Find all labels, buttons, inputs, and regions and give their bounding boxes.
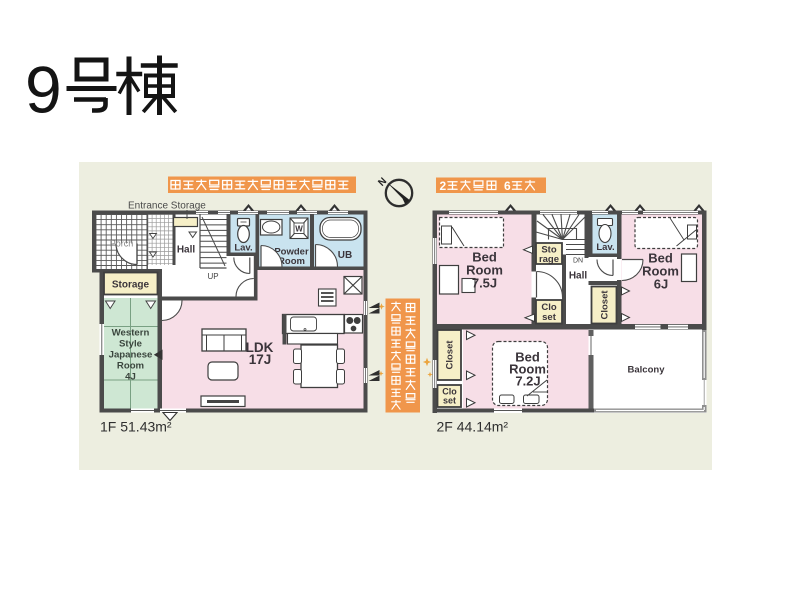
svg-text:Japanese: Japanese [109,350,153,361]
svg-text:7.2J: 7.2J [515,374,540,389]
svg-text:4J: 4J [125,372,136,383]
svg-text:Room: Room [117,361,144,372]
svg-text:Style: Style [119,339,142,350]
svg-text:UP: UP [207,272,218,281]
svg-text:Balcony: Balcony [628,365,666,376]
svg-text:Closet: Closet [445,340,456,370]
svg-text:DN: DN [573,258,583,265]
svg-text:Porch: Porch [110,239,134,249]
svg-text:2F 44.14m²: 2F 44.14m² [437,419,509,435]
svg-text:set: set [542,312,557,323]
svg-text:9: 9 [25,53,62,127]
svg-text:6J: 6J [654,277,668,292]
svg-text:Hall: Hall [177,245,196,256]
svg-text:7.5J: 7.5J [472,276,497,291]
svg-text:Storage: Storage [112,280,150,291]
svg-text:UB: UB [338,250,352,261]
svg-text:Lav.: Lav. [234,243,252,254]
svg-text:Lav.: Lav. [596,242,614,253]
svg-text:Closet: Closet [600,290,611,320]
svg-text:W: W [295,225,303,234]
svg-text:1F 51.43m²: 1F 51.43m² [100,419,172,435]
svg-text:set: set [443,396,456,406]
svg-text:rage: rage [539,254,559,265]
svg-text:6: 6 [504,179,511,193]
svg-text:2: 2 [440,179,447,193]
svg-text:17J: 17J [249,352,272,367]
svg-text:Entrance Storage: Entrance Storage [128,201,206,212]
svg-text:Western: Western [112,328,150,339]
svg-text:Hall: Hall [569,271,588,282]
